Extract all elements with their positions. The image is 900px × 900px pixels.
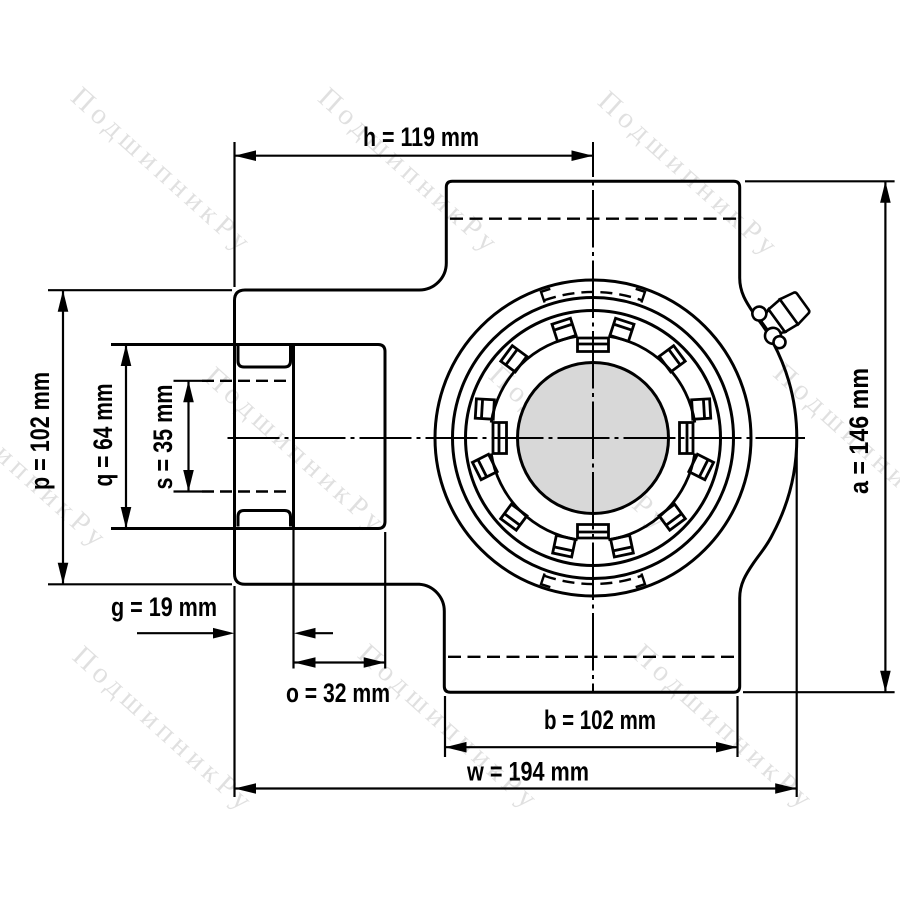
svg-text:h = 119 mm: h = 119 mm: [363, 122, 479, 152]
svg-text:p = 102 mm: p = 102 mm: [25, 372, 55, 490]
svg-text:b = 102 mm: b = 102 mm: [544, 705, 656, 735]
svg-text:g = 19 mm: g = 19 mm: [111, 592, 217, 622]
svg-text:w = 194 mm: w = 194 mm: [466, 757, 589, 787]
svg-text:q = 64 mm: q = 64 mm: [88, 384, 118, 487]
svg-text:a = 146 mm: a = 146 mm: [844, 368, 874, 494]
svg-text:s = 35 mm: s = 35 mm: [148, 385, 178, 490]
svg-text:o = 32 mm: o = 32 mm: [286, 678, 390, 708]
